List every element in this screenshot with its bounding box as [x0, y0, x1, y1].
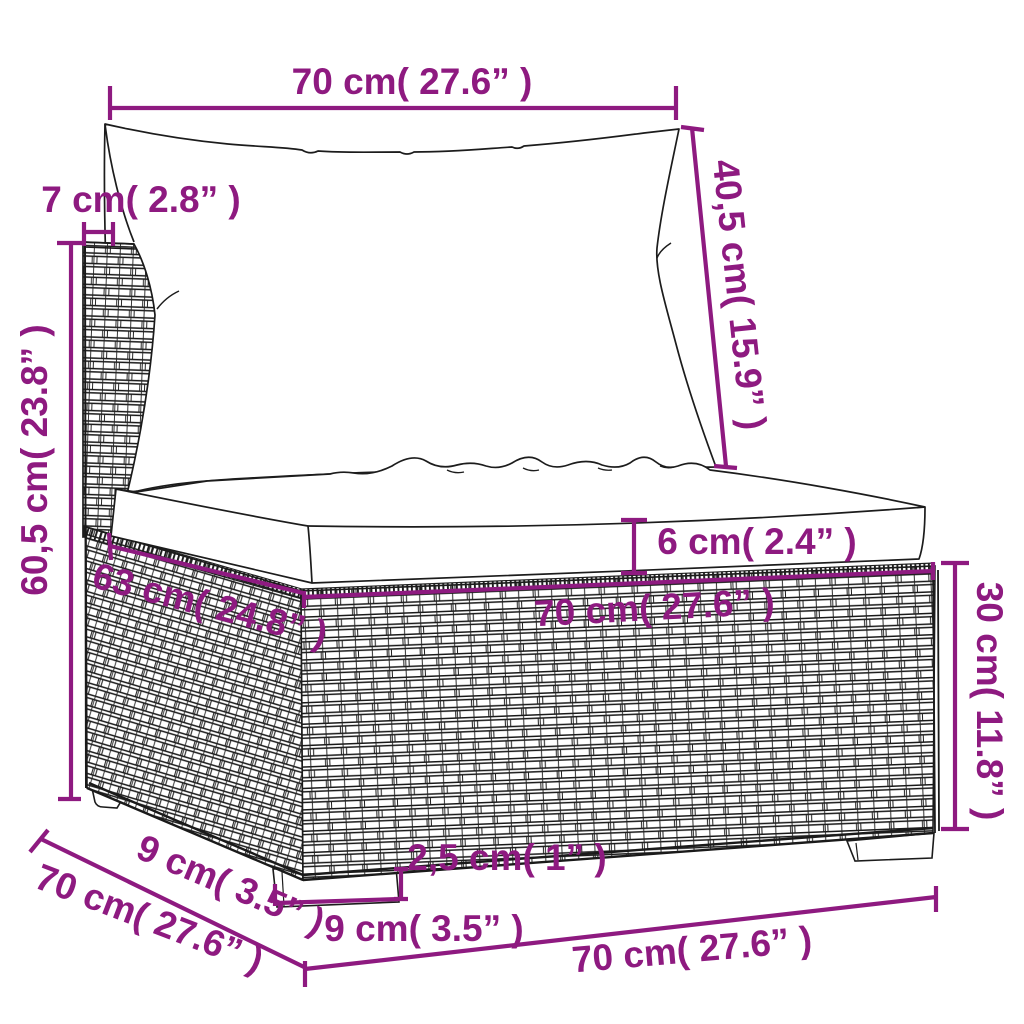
svg-text:70 cm( 27.6” ): 70 cm( 27.6” ) [292, 61, 533, 102]
svg-text:9 cm( 3.5” ): 9 cm( 3.5” ) [324, 908, 523, 949]
svg-text:30 cm( 11.8” ): 30 cm( 11.8” ) [969, 582, 1010, 821]
svg-text:2,5 cm( 1” ): 2,5 cm( 1” ) [407, 837, 606, 878]
svg-text:7 cm( 2.8” ): 7 cm( 2.8” ) [41, 179, 240, 220]
svg-text:6 cm( 2.4” ): 6 cm( 2.4” ) [657, 521, 856, 562]
svg-text:60,5 cm( 23.8” ): 60,5 cm( 23.8” ) [14, 324, 55, 595]
